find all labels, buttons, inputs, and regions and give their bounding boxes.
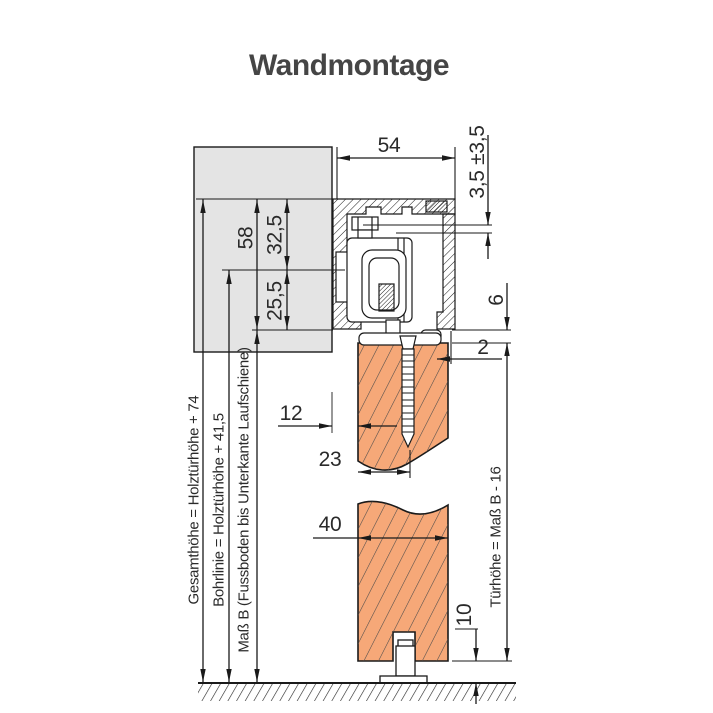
hanger-bolt-neck [358, 230, 372, 238]
arrow [504, 648, 509, 661]
screw-head [400, 336, 416, 349]
label-massb: Maß B (Fussboden bis Unterkante Laufschi… [236, 347, 253, 653]
dim-2: 2 [477, 336, 488, 359]
dim-35: 3,5 ±3,5 [466, 125, 489, 198]
arrow [254, 669, 259, 682]
arrow [226, 669, 231, 682]
track-profile-right-wall [437, 214, 455, 329]
arrow [473, 648, 478, 661]
dim-255: 25,5 [264, 281, 287, 321]
label-bohrlinie: Bohrlinie = Holztürhöhe + 41,5 [211, 413, 228, 607]
arrow [485, 233, 490, 246]
hanger-bolt-head [352, 217, 378, 230]
dim-23: 23 [319, 448, 342, 471]
dim-58: 58 [235, 227, 258, 250]
arrow [358, 469, 371, 474]
dim-10: 10 [453, 604, 476, 627]
dim-12: 12 [280, 402, 303, 425]
label-tuerhoehe: Türhöhe = Maß B - 16 [488, 466, 505, 607]
door-panel-lower [358, 501, 448, 661]
arrow [397, 469, 410, 474]
arrow [319, 423, 332, 428]
technical-drawing: Wandmontage [0, 0, 713, 713]
floor-hatch [198, 684, 516, 701]
carriage-spring [379, 284, 394, 311]
door-lower-hatch [358, 501, 448, 661]
arrow [200, 669, 205, 682]
floor-guide-stem [396, 646, 415, 676]
dim-6: 6 [485, 294, 508, 305]
track-clip-insert [426, 201, 447, 212]
floor [198, 683, 516, 701]
page-title: Wandmontage [249, 49, 449, 82]
dim-40: 40 [319, 513, 342, 536]
arrow [504, 317, 509, 330]
arrow [337, 155, 350, 160]
arrow [504, 343, 509, 356]
label-gesamthoehe: Gesamthöhe = Holztürhöhe + 74 [186, 396, 203, 605]
dim-325: 32,5 [264, 215, 287, 255]
arrow [485, 212, 490, 225]
dim-54: 54 [378, 134, 401, 157]
wall-mount-diagram-page: Wandmontage [0, 0, 713, 713]
floor-guide-base [380, 676, 427, 683]
hanger-plate [359, 333, 441, 345]
arrow [442, 155, 455, 160]
